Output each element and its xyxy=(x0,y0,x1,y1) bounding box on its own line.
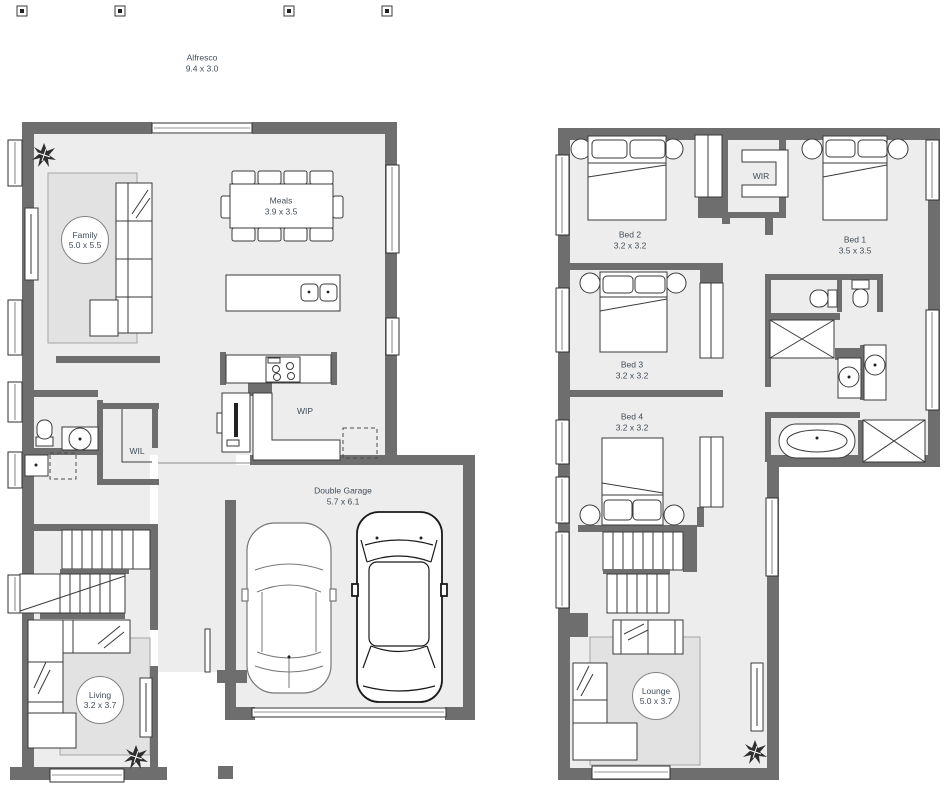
room-dims: 5.0 x 5.5 xyxy=(69,240,102,251)
room-label-garage: Double Garage 5.7 x 6.1 xyxy=(314,486,372,507)
robe-icon xyxy=(695,135,722,197)
living-tv-icon xyxy=(140,678,152,737)
toilet-icon xyxy=(36,420,53,446)
cooktop-icon xyxy=(226,355,331,383)
room-dims: 3.2 x 3.7 xyxy=(84,700,117,711)
room-label-wip: WIP xyxy=(297,406,313,417)
car-icon xyxy=(242,523,336,693)
room-dims: 3.2 x 3.2 xyxy=(616,370,649,381)
room-label-wir: WIR xyxy=(753,171,770,182)
robe-icon xyxy=(700,437,723,507)
floor-plan: Alfresco 9.4 x 3.0 Family 5.0 x 5.5 Meal… xyxy=(0,0,944,792)
room-label-wil: WIL xyxy=(129,446,144,457)
room-label-lounge: Lounge 5.0 x 3.7 xyxy=(632,672,680,720)
bathtub-icon xyxy=(779,424,855,458)
room-name: WIR xyxy=(753,171,770,182)
lounge-tv-icon xyxy=(751,663,763,731)
entry-door-leaf xyxy=(205,629,210,672)
garage-door xyxy=(252,708,446,717)
room-dims: 3.5 x 3.5 xyxy=(839,245,872,256)
room-name: Living xyxy=(89,690,111,701)
room-name: Bed 2 xyxy=(614,230,647,241)
family-tv-icon xyxy=(25,208,38,280)
floor-plan-drawing xyxy=(0,0,944,792)
upper-floor xyxy=(556,128,940,780)
room-dims: 3.9 x 3.5 xyxy=(265,206,298,217)
pantry-cabinet-icon xyxy=(217,393,250,452)
kitchen-island-icon xyxy=(226,275,340,311)
bed-icon xyxy=(571,136,683,220)
vanity-basin-icon xyxy=(864,345,886,400)
room-name: WIL xyxy=(129,446,144,457)
basin-icon xyxy=(62,427,98,450)
shower-icon xyxy=(770,320,834,358)
room-name: Family xyxy=(72,230,97,241)
room-name: WIP xyxy=(297,406,313,417)
room-dims: 5.7 x 6.1 xyxy=(314,496,372,507)
room-dims: 3.2 x 3.2 xyxy=(616,422,649,433)
room-name: Bed 3 xyxy=(616,360,649,371)
room-label-living: Living 3.2 x 3.7 xyxy=(76,676,124,724)
room-label-family: Family 5.0 x 5.5 xyxy=(61,216,109,264)
room-name: Lounge xyxy=(642,686,670,697)
room-name: Bed 4 xyxy=(616,412,649,423)
room-label-bed1: Bed 1 3.5 x 3.5 xyxy=(839,235,872,256)
room-dims: 9.4 x 3.0 xyxy=(186,63,219,74)
sliding-door xyxy=(152,123,252,133)
room-dims: 3.2 x 3.2 xyxy=(614,240,647,251)
toilet-icon xyxy=(810,290,837,307)
room-label-bed4: Bed 4 3.2 x 3.2 xyxy=(616,412,649,433)
car-icon xyxy=(352,512,447,702)
alfresco-posts xyxy=(17,6,392,16)
robe-icon xyxy=(700,283,723,358)
shower-icon xyxy=(863,420,925,462)
room-label-meals: Meals 3.9 x 3.5 xyxy=(265,196,298,217)
room-dims: 5.0 x 3.7 xyxy=(640,696,673,707)
room-label-bed2: Bed 2 3.2 x 3.2 xyxy=(614,230,647,251)
vanity-basin-icon xyxy=(838,358,861,398)
laundry-trough-icon xyxy=(25,455,48,476)
room-label-bed3: Bed 3 3.2 x 3.2 xyxy=(616,360,649,381)
toilet-icon xyxy=(852,280,869,307)
ground-floor xyxy=(8,6,475,782)
room-label-alfresco: Alfresco 9.4 x 3.0 xyxy=(186,53,219,74)
room-name: Double Garage xyxy=(314,486,372,497)
room-name: Meals xyxy=(265,196,298,207)
room-name: Alfresco xyxy=(186,53,219,64)
room-name: Bed 1 xyxy=(839,235,872,246)
